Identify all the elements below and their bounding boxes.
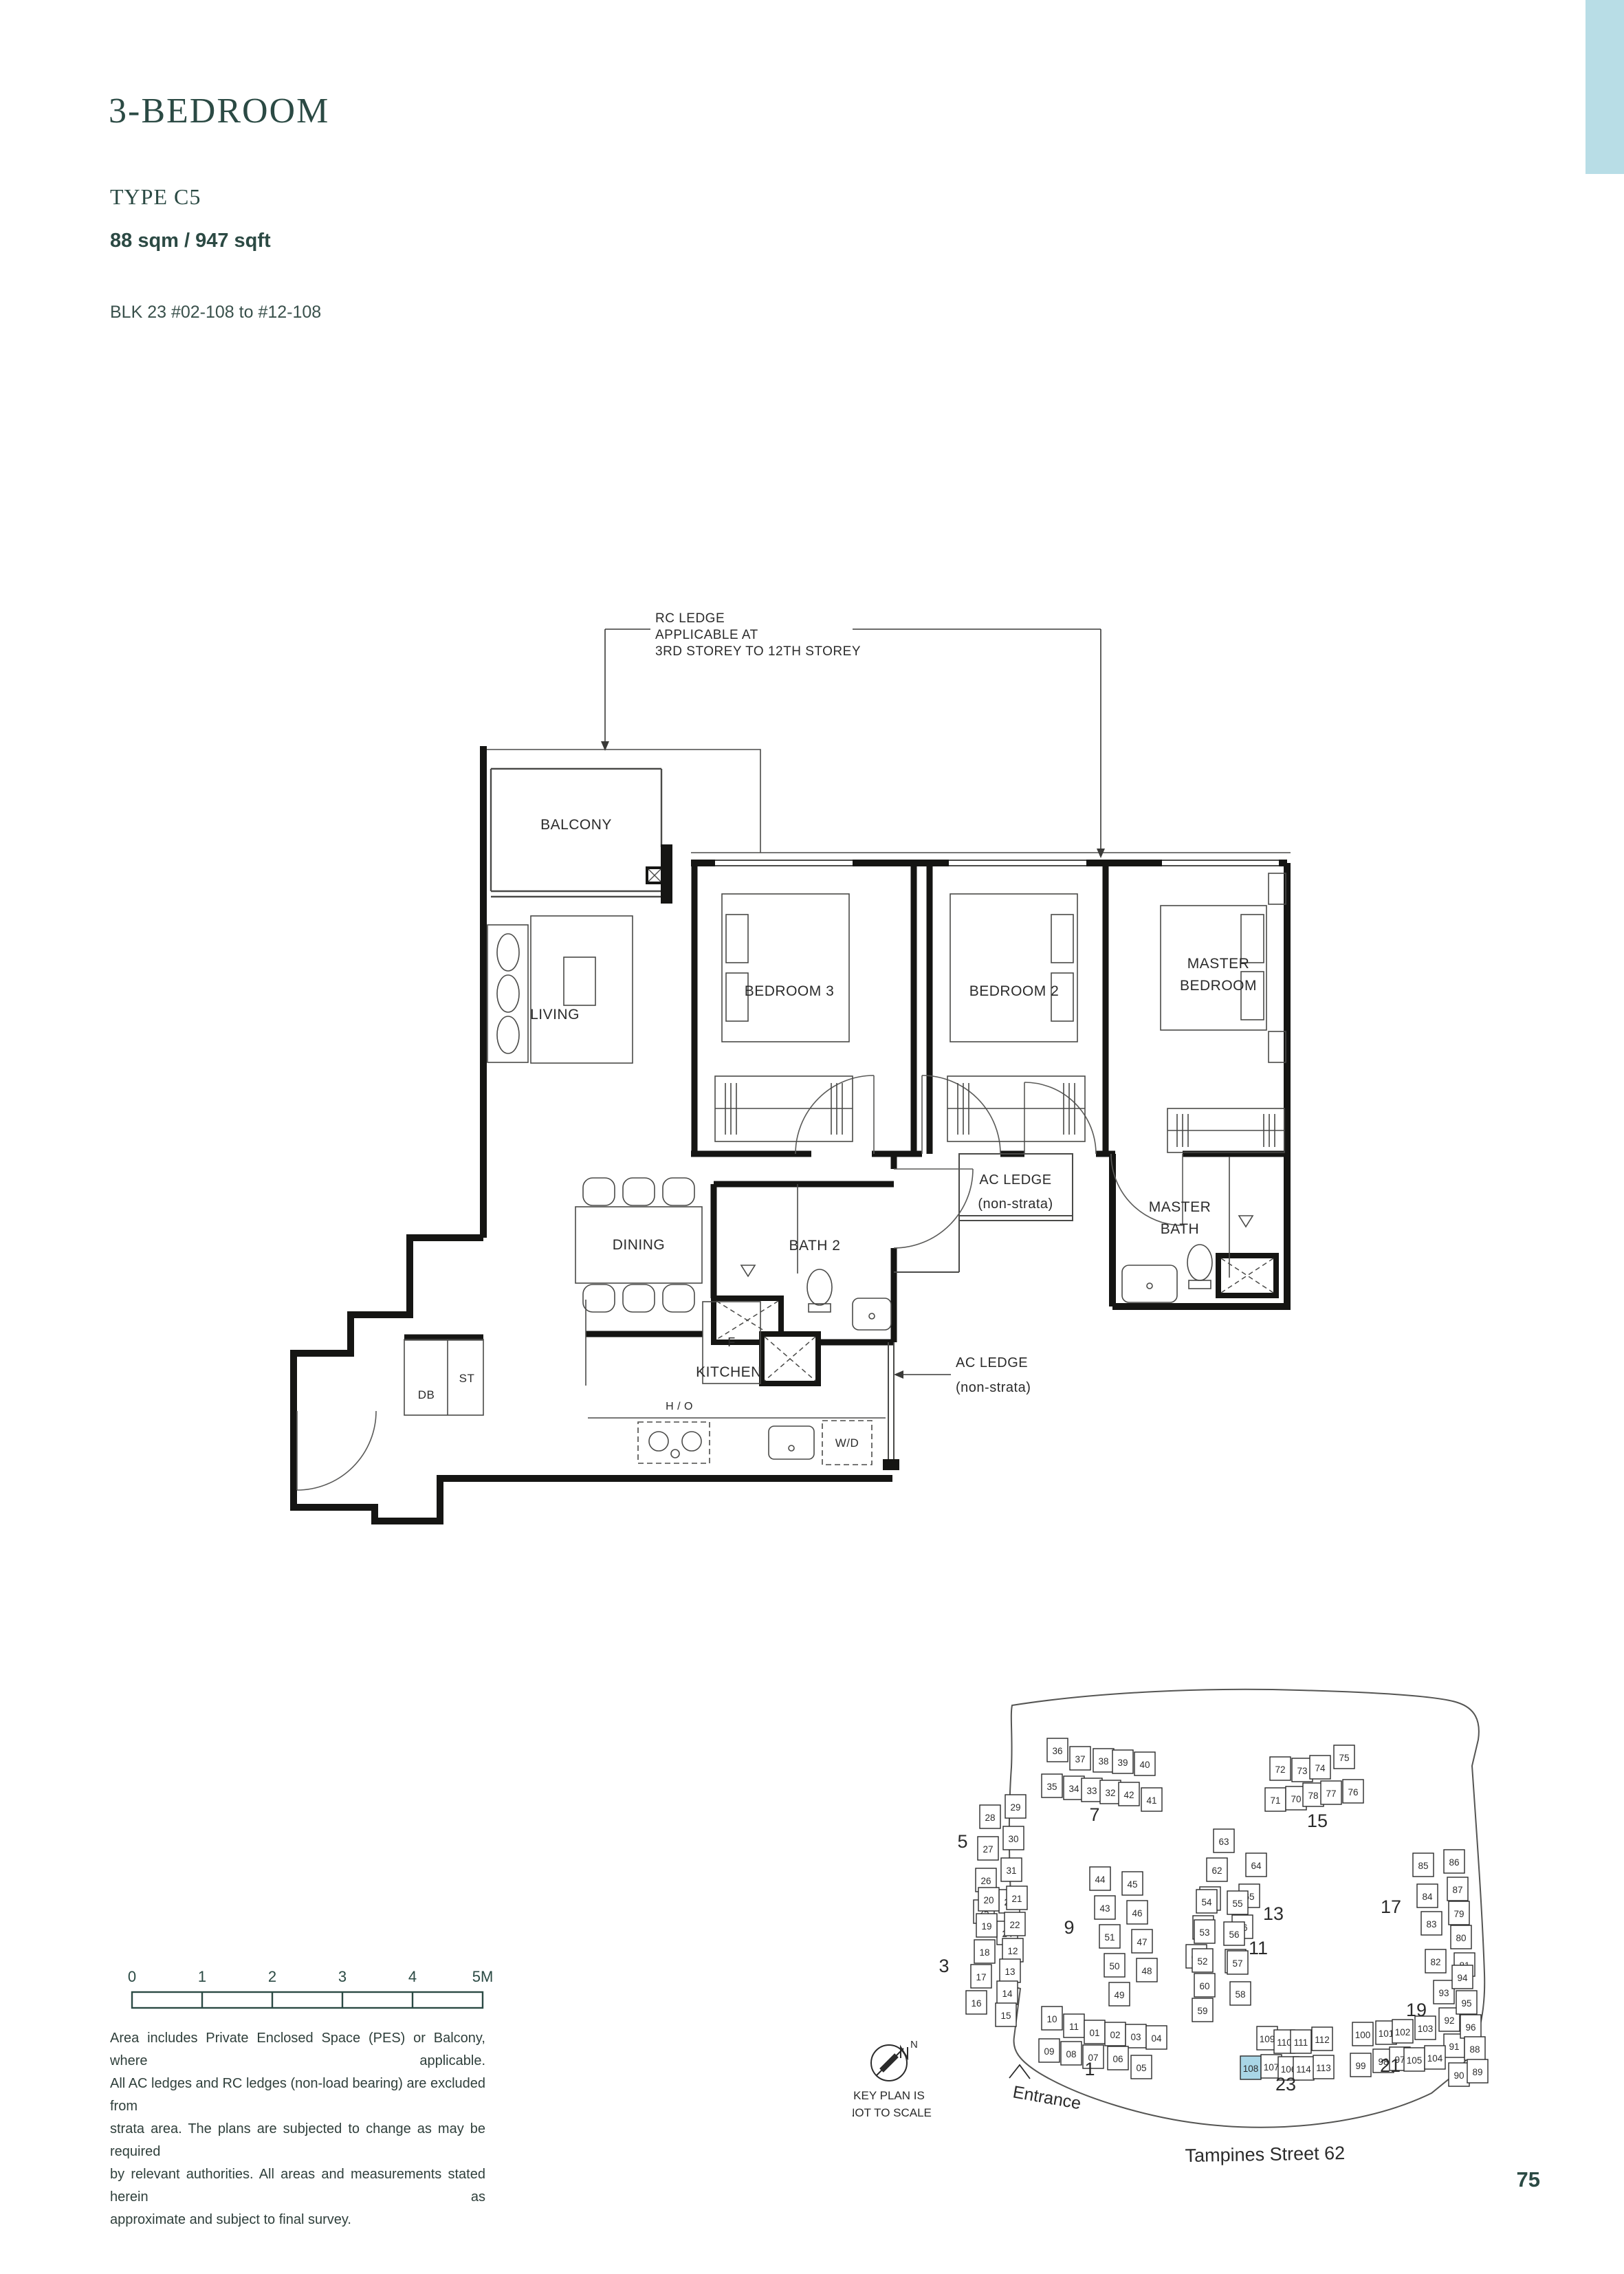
svg-text:31: 31 bbox=[1006, 1866, 1016, 1876]
basin bbox=[853, 1298, 891, 1330]
svg-text:59: 59 bbox=[1197, 2006, 1207, 2016]
svg-text:21: 21 bbox=[1380, 2055, 1401, 2076]
svg-text:33: 33 bbox=[1086, 1786, 1097, 1796]
svg-text:11: 11 bbox=[1249, 1938, 1268, 1958]
svg-text:16: 16 bbox=[971, 1998, 981, 2009]
svg-text:71: 71 bbox=[1270, 1795, 1280, 1806]
svg-text:(non-strata): (non-strata) bbox=[978, 1196, 1053, 1212]
svg-text:74: 74 bbox=[1315, 1763, 1326, 1773]
svg-text:27: 27 bbox=[983, 1844, 993, 1855]
rc-ledge-arrow-right bbox=[1097, 849, 1105, 858]
svg-text:7: 7 bbox=[1089, 1804, 1099, 1825]
svg-text:51: 51 bbox=[1104, 1932, 1115, 1943]
svg-text:35: 35 bbox=[1046, 1782, 1057, 1792]
svg-text:111: 111 bbox=[1294, 2037, 1308, 2048]
svg-text:103: 103 bbox=[1418, 2024, 1434, 2034]
svg-text:104: 104 bbox=[1427, 2053, 1443, 2064]
svg-text:12: 12 bbox=[1007, 1946, 1018, 1956]
disclaimer-line: by relevant authorities. All areas and m… bbox=[110, 2163, 485, 2209]
svg-text:62: 62 bbox=[1211, 1866, 1222, 1876]
street-label: Tampines Street 62 bbox=[1185, 2143, 1345, 2166]
svg-text:22: 22 bbox=[1009, 1920, 1020, 1930]
furniture bbox=[404, 873, 1286, 1465]
svg-text:109: 109 bbox=[1260, 2034, 1275, 2044]
bed bbox=[722, 894, 849, 1042]
svg-text:38: 38 bbox=[1098, 1756, 1108, 1767]
toilet bbox=[1187, 1245, 1212, 1280]
svg-text:F: F bbox=[727, 1335, 736, 1349]
svg-text:48: 48 bbox=[1141, 1966, 1152, 1976]
disclaimer-line: All AC ledges and RC ledges (non-load be… bbox=[110, 2073, 485, 2118]
svg-text:29: 29 bbox=[1010, 1802, 1020, 1813]
svg-text:72: 72 bbox=[1275, 1764, 1285, 1775]
svg-text:90: 90 bbox=[1453, 2070, 1464, 2081]
keyplan-note-line2: NOT TO SCALE bbox=[853, 2106, 932, 2119]
svg-text:52: 52 bbox=[1197, 1956, 1207, 1967]
bedroom-windows bbox=[715, 858, 1279, 868]
svg-text:89: 89 bbox=[1472, 2067, 1482, 2077]
svg-text:78: 78 bbox=[1308, 1791, 1318, 1801]
svg-text:39: 39 bbox=[1117, 1758, 1128, 1768]
chair bbox=[583, 1284, 615, 1312]
svg-text:DB: DB bbox=[418, 1388, 435, 1401]
svg-text:(non-strata): (non-strata) bbox=[956, 1380, 1031, 1395]
entrance-label: Entrance bbox=[1011, 2082, 1082, 2113]
svg-text:05: 05 bbox=[1136, 2063, 1146, 2073]
svg-text:01: 01 bbox=[1089, 2028, 1099, 2038]
north-compass-icon: N bbox=[871, 2039, 918, 2081]
svg-text:105: 105 bbox=[1407, 2055, 1423, 2066]
svg-text:113: 113 bbox=[1316, 2063, 1331, 2073]
svg-text:BEDROOM 2: BEDROOM 2 bbox=[969, 983, 1060, 999]
ac-ledge-room bbox=[894, 1154, 1073, 1272]
key-plan: N KEY PLAN IS NOT TO SCALE Entrance Tamp… bbox=[853, 1685, 1624, 2173]
svg-text:36: 36 bbox=[1052, 1746, 1062, 1756]
svg-text:58: 58 bbox=[1235, 1989, 1245, 2000]
svg-text:09: 09 bbox=[1044, 2046, 1054, 2057]
svg-text:91: 91 bbox=[1449, 2042, 1459, 2052]
svg-text:102: 102 bbox=[1395, 2027, 1411, 2037]
unit-area-label: 88 sqm / 947 sqft bbox=[110, 230, 271, 252]
ac-ledge-channel bbox=[883, 1342, 899, 1470]
svg-text:41: 41 bbox=[1146, 1795, 1156, 1806]
svg-text:49: 49 bbox=[1114, 1990, 1124, 2000]
svg-text:06: 06 bbox=[1112, 2054, 1123, 2064]
svg-text:108: 108 bbox=[1243, 2064, 1259, 2074]
chair bbox=[623, 1284, 655, 1312]
svg-text:17: 17 bbox=[976, 1972, 986, 1982]
coffee-table bbox=[564, 957, 595, 1005]
svg-text:H / O: H / O bbox=[666, 1401, 693, 1412]
page-number: 75 bbox=[1478, 2167, 1540, 2192]
shaft-box-balcony bbox=[647, 868, 662, 883]
svg-text:76: 76 bbox=[1348, 1787, 1358, 1797]
svg-text:44: 44 bbox=[1095, 1874, 1106, 1885]
sink bbox=[769, 1426, 814, 1459]
svg-text:73: 73 bbox=[1297, 1766, 1307, 1776]
keyplan-unit-blocks: 3637383940353433324241772737475717078777… bbox=[939, 1738, 1488, 2095]
svg-text:BALCONY: BALCONY bbox=[540, 817, 612, 833]
svg-text:N: N bbox=[910, 2039, 918, 2051]
svg-text:34: 34 bbox=[1068, 1784, 1079, 1794]
svg-text:10: 10 bbox=[1046, 2014, 1057, 2024]
svg-text:3: 3 bbox=[939, 1956, 949, 1976]
svg-text:110: 110 bbox=[1277, 2037, 1292, 2048]
svg-text:04: 04 bbox=[1151, 2033, 1162, 2044]
svg-text:0: 0 bbox=[128, 1968, 136, 1985]
page-edge-accent-bar bbox=[1585, 0, 1624, 174]
svg-text:26: 26 bbox=[980, 1876, 991, 1886]
keyplan-block-7: 36373839403534333242417 bbox=[1042, 1738, 1162, 1825]
svg-text:45: 45 bbox=[1127, 1879, 1137, 1890]
disclaimer-text: Area includes Private Enclosed Space (PE… bbox=[110, 2027, 485, 2231]
svg-text:95: 95 bbox=[1461, 1998, 1471, 2009]
svg-text:APPLICABLE AT: APPLICABLE AT bbox=[655, 628, 758, 642]
svg-text:56: 56 bbox=[1229, 1929, 1239, 1940]
svg-text:60: 60 bbox=[1199, 1981, 1209, 1991]
keyplan-block-3: 20211922181217131614153 bbox=[939, 1886, 1027, 2026]
svg-text:99: 99 bbox=[1355, 2061, 1365, 2071]
svg-text:82: 82 bbox=[1430, 1957, 1440, 1967]
svg-text:08: 08 bbox=[1066, 2049, 1076, 2059]
svg-text:112: 112 bbox=[1315, 2035, 1330, 2045]
svg-text:W/D: W/D bbox=[835, 1436, 859, 1450]
svg-text:5M: 5M bbox=[472, 1968, 494, 1985]
svg-text:101: 101 bbox=[1379, 2029, 1394, 2039]
svg-text:55: 55 bbox=[1232, 1899, 1242, 1909]
svg-text:02: 02 bbox=[1110, 2030, 1120, 2040]
unit-type-label: TYPE C5 bbox=[110, 184, 201, 210]
svg-text:AC LEDGE: AC LEDGE bbox=[956, 1355, 1028, 1370]
svg-text:30: 30 bbox=[1008, 1834, 1018, 1844]
rug bbox=[531, 916, 633, 1063]
svg-text:BEDROOM 3: BEDROOM 3 bbox=[745, 983, 835, 999]
svg-text:50: 50 bbox=[1109, 1961, 1119, 1971]
svg-text:21: 21 bbox=[1011, 1894, 1022, 1904]
scale-bar: 012345M bbox=[103, 1963, 516, 2018]
nightstand bbox=[1269, 873, 1286, 904]
svg-text:03: 03 bbox=[1130, 2032, 1141, 2042]
svg-text:AC LEDGE: AC LEDGE bbox=[979, 1172, 1051, 1188]
chair bbox=[663, 1284, 694, 1312]
svg-text:75: 75 bbox=[1339, 1753, 1349, 1763]
balcony-walls bbox=[491, 769, 661, 897]
keyplan-block-17: 85868487837982808117 bbox=[1381, 1850, 1475, 1976]
svg-text:70: 70 bbox=[1291, 1794, 1301, 1804]
brochure-page: 3-BEDROOM TYPE C5 88 sqm / 947 sqft BLK … bbox=[0, 0, 1624, 2274]
svg-text:84: 84 bbox=[1422, 1892, 1433, 1902]
bed bbox=[950, 894, 1077, 1042]
entrance-marker bbox=[1009, 2065, 1030, 2079]
svg-text:3RD STOREY TO 12TH STOREY: 3RD STOREY TO 12TH STOREY bbox=[655, 644, 861, 659]
svg-text:13: 13 bbox=[1263, 1903, 1284, 1924]
block-range-label: BLK 23 #02-108 to #12-108 bbox=[110, 303, 321, 322]
svg-text:KITCHEN: KITCHEN bbox=[696, 1364, 762, 1380]
svg-text:107: 107 bbox=[1264, 2062, 1280, 2073]
door-swings bbox=[297, 1075, 1183, 1490]
ac-ledge-arrow bbox=[894, 1370, 903, 1379]
rc-ledge-leader-line bbox=[605, 629, 1101, 849]
svg-text:83: 83 bbox=[1426, 1919, 1436, 1929]
svg-text:46: 46 bbox=[1132, 1908, 1142, 1918]
svg-text:5: 5 bbox=[957, 1831, 967, 1852]
sofa bbox=[487, 925, 528, 1062]
svg-text:11: 11 bbox=[1069, 2022, 1079, 2032]
rc-ledge-outline bbox=[483, 750, 1291, 853]
svg-text:96: 96 bbox=[1465, 2022, 1475, 2033]
svg-text:43: 43 bbox=[1099, 1903, 1110, 1914]
svg-text:ST: ST bbox=[459, 1372, 475, 1385]
keyplan-note-line1: KEY PLAN IS bbox=[853, 2089, 925, 2102]
svg-text:37: 37 bbox=[1075, 1754, 1085, 1764]
floor-plan-labels: BALCONYLIVINGDININGBATH 2BEDROOM 3BEDROO… bbox=[418, 611, 1257, 1450]
disclaimer-line: strata area. The plans are subjected to … bbox=[110, 2118, 485, 2163]
svg-text:114: 114 bbox=[1296, 2064, 1311, 2075]
keyplan-block-23: 10911011111210810710611411323 bbox=[1240, 2026, 1334, 2095]
keyplan-block-15: 72737475717078777615 bbox=[1265, 1745, 1363, 1831]
svg-text:54: 54 bbox=[1201, 1897, 1212, 1907]
svg-text:57: 57 bbox=[1232, 1958, 1242, 1969]
chair bbox=[583, 1178, 615, 1205]
floor-plan: BALCONYLIVINGDININGBATH 2BEDROOM 3BEDROO… bbox=[275, 591, 1409, 1595]
svg-text:94: 94 bbox=[1457, 1973, 1468, 1983]
svg-text:42: 42 bbox=[1123, 1790, 1134, 1800]
svg-text:BEDROOM: BEDROOM bbox=[1180, 978, 1257, 994]
svg-text:9: 9 bbox=[1064, 1917, 1074, 1938]
nightstand bbox=[1269, 1031, 1286, 1062]
svg-text:LIVING: LIVING bbox=[530, 1007, 580, 1023]
svg-text:RC LEDGE: RC LEDGE bbox=[655, 611, 725, 626]
svg-text:DINING: DINING bbox=[613, 1237, 666, 1253]
svg-text:77: 77 bbox=[1326, 1789, 1336, 1799]
svg-text:13: 13 bbox=[1005, 1967, 1015, 1977]
svg-text:53: 53 bbox=[1199, 1927, 1209, 1938]
svg-text:1: 1 bbox=[198, 1968, 206, 1985]
svg-text:14: 14 bbox=[1002, 1989, 1013, 1999]
svg-text:1: 1 bbox=[1084, 2059, 1095, 2079]
interior-walls bbox=[404, 863, 1287, 1342]
svg-text:92: 92 bbox=[1444, 2015, 1454, 2026]
svg-text:23: 23 bbox=[1275, 2074, 1296, 2095]
svg-text:88: 88 bbox=[1469, 2044, 1480, 2055]
svg-text:28: 28 bbox=[985, 1813, 995, 1823]
svg-text:86: 86 bbox=[1449, 1857, 1459, 1868]
svg-text:100: 100 bbox=[1355, 2030, 1371, 2040]
svg-text:79: 79 bbox=[1453, 1909, 1464, 1919]
disclaimer-line: approximate and subject to final survey. bbox=[110, 2209, 485, 2231]
svg-text:18: 18 bbox=[979, 1947, 989, 1958]
disclaimer-line: Area includes Private Enclosed Space (PE… bbox=[110, 2027, 485, 2073]
page-title: 3-BEDROOM bbox=[109, 91, 329, 131]
toilet bbox=[807, 1269, 832, 1305]
chair bbox=[663, 1178, 694, 1205]
svg-text:2: 2 bbox=[268, 1968, 276, 1985]
svg-text:47: 47 bbox=[1137, 1937, 1147, 1947]
svg-text:19: 19 bbox=[981, 1921, 991, 1932]
svg-text:80: 80 bbox=[1456, 1933, 1466, 1943]
svg-text:15: 15 bbox=[1000, 2011, 1011, 2021]
svg-text:17: 17 bbox=[1381, 1896, 1401, 1917]
svg-text:40: 40 bbox=[1139, 1760, 1150, 1770]
keyplan-block-11: 54555356525760585911 bbox=[1192, 1890, 1268, 2022]
keyplan-block-9: 4445434651475048499 bbox=[1064, 1867, 1157, 2006]
basin bbox=[1122, 1265, 1177, 1302]
svg-text:MASTER: MASTER bbox=[1149, 1199, 1211, 1215]
svg-text:MASTER: MASTER bbox=[1187, 956, 1250, 972]
chair bbox=[623, 1178, 655, 1205]
keyplan-block-21: 10010110210399989710510421 bbox=[1350, 2016, 1445, 2077]
svg-text:93: 93 bbox=[1438, 1988, 1449, 1998]
svg-text:4: 4 bbox=[408, 1968, 417, 1985]
svg-text:BATH: BATH bbox=[1161, 1221, 1199, 1237]
svg-text:32: 32 bbox=[1105, 1788, 1115, 1798]
svg-text:BATH 2: BATH 2 bbox=[789, 1238, 841, 1254]
svg-text:3: 3 bbox=[338, 1968, 347, 1985]
svg-text:15: 15 bbox=[1307, 1811, 1328, 1831]
svg-text:87: 87 bbox=[1452, 1885, 1462, 1895]
keyplan-block-1: 10110102030409080706051 bbox=[1039, 2007, 1167, 2079]
svg-text:20: 20 bbox=[983, 1895, 994, 1905]
svg-text:63: 63 bbox=[1218, 1837, 1229, 1847]
svg-text:64: 64 bbox=[1251, 1861, 1262, 1871]
svg-text:85: 85 bbox=[1418, 1861, 1428, 1871]
